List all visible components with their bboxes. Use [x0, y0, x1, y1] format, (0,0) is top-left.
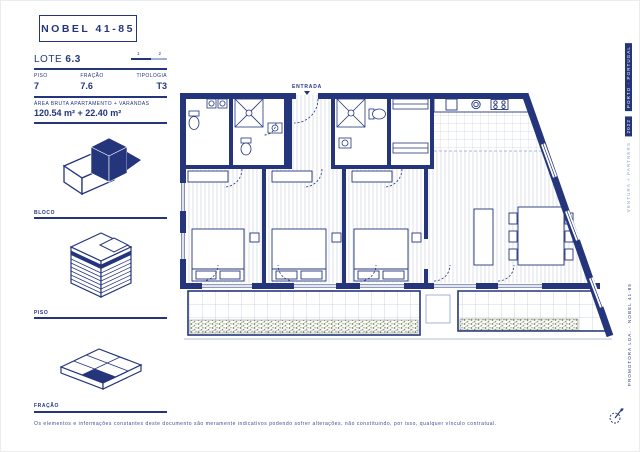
kitchen-fixtures — [434, 97, 528, 112]
piso-isometric-icon — [56, 229, 146, 305]
living-furniture — [474, 207, 573, 265]
legend-piso-label: PISO — [34, 310, 48, 316]
field-fracao-label: FRAÇÃO — [80, 73, 103, 79]
divider — [34, 317, 167, 319]
field-tipologia: TIPOLOGIA T3 — [136, 73, 167, 91]
field-tipologia-label: TIPOLOGIA — [136, 73, 167, 79]
field-piso-value: 7 — [34, 81, 48, 91]
side-studio: VENTURA + PARTNERS — [626, 142, 631, 212]
fracao-isometric-icon — [51, 339, 151, 397]
field-fracao: FRAÇÃO 7.6 — [80, 73, 103, 91]
entrance-arrow-icon — [304, 91, 310, 95]
divider — [34, 96, 167, 98]
side-location: PORTO · PORTUGAL — [625, 43, 632, 111]
floor-plan — [176, 83, 616, 345]
entrance-label-group: ENTRADA — [285, 84, 329, 95]
side-year: 2022 — [625, 116, 632, 136]
side-project-credit: PROMOTORA LDA. · NOBEL 41-85 — [627, 283, 632, 386]
page-tab-1[interactable]: 1 — [137, 51, 140, 56]
lote-label: LOTE — [34, 54, 62, 65]
divider — [34, 217, 167, 219]
north-arrow-icon — [607, 404, 627, 428]
bloco-isometric-icon — [56, 134, 146, 206]
area-value: 120.54 m² + 22.40 m² — [34, 108, 121, 118]
project-title-box: NOBEL 41-85 — [39, 15, 137, 42]
unit-fields: PISO 7 FRAÇÃO 7.6 TIPOLOGIA T3 — [34, 73, 167, 91]
drawing-sheet: NOBEL 41-85 LOTE 6.3 1 2 PISO 7 FRAÇÃO 7… — [0, 0, 640, 452]
page-indicator-inactive — [151, 58, 167, 61]
left-balcony — [188, 291, 420, 335]
right-balcony — [458, 291, 608, 331]
divider — [34, 411, 167, 413]
entrance-label: ENTRADA — [285, 84, 329, 90]
field-piso-label: PISO — [34, 73, 48, 79]
field-fracao-value: 7.6 — [80, 81, 103, 91]
field-tipologia-value: T3 — [136, 81, 167, 91]
project-title: NOBEL 41-85 — [41, 23, 135, 35]
area-label: ÁREA BRUTA APARTAMENTO + VARANDAS — [34, 101, 149, 107]
page-indicator-bar — [131, 58, 167, 61]
divider — [34, 122, 167, 124]
disclaimer-text: Os elementos e informações constantes de… — [34, 421, 604, 427]
lote-value: 6.3 — [65, 54, 80, 65]
legend-bloco-label: BLOCO — [34, 210, 55, 216]
lote-row: LOTE 6.3 — [34, 54, 81, 65]
side-credits-bottom: PROMOTORA LDA. · NOBEL 41-85 — [627, 283, 632, 391]
balcony-divider — [426, 295, 450, 323]
legend-fracao-label: FRAÇÃO — [34, 403, 59, 409]
field-piso: PISO 7 — [34, 73, 48, 91]
page-indicator: 1 2 — [131, 51, 167, 60]
side-credits-top: PORTO · PORTUGAL 2022 VENTURA + PARTNERS — [625, 43, 632, 212]
page-indicator-active — [131, 58, 151, 61]
divider — [34, 68, 167, 70]
page-tab-2[interactable]: 2 — [158, 51, 161, 56]
